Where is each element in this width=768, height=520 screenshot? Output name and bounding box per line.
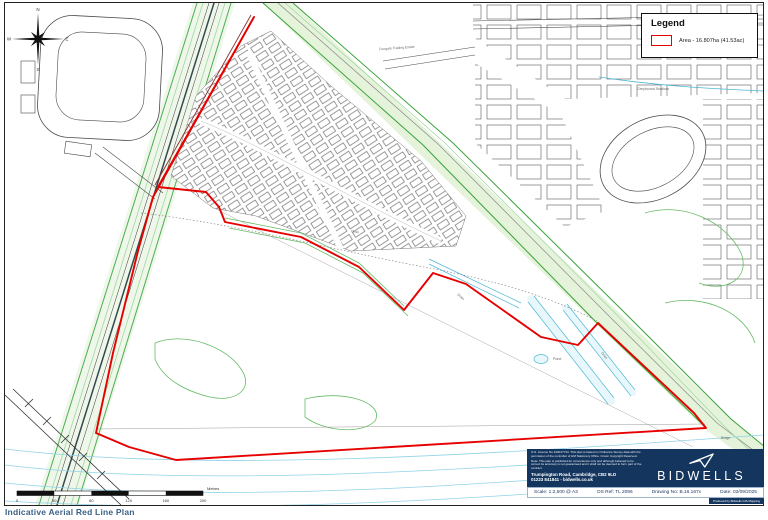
compass-n: N — [36, 7, 39, 12]
bidwells-wordmark: BIDWELLS — [657, 469, 746, 483]
label-stadium: Greyhound Stadium — [637, 87, 669, 91]
scale-tick-1: 40 — [52, 498, 57, 503]
page-title: Indicative Aerial Red Line Plan — [5, 507, 135, 517]
drawing-info-box: O.S. Licence No 100017734. This plan is … — [527, 449, 764, 504]
bidwells-logo: BIDWELLS — [643, 451, 760, 485]
legend-area-label: Area - 16.807ha (41.53ac) — [679, 38, 744, 44]
label-bridge: Bridge — [721, 436, 730, 440]
red-line-plan-page: N E S W Fengate Trading Estate Greyhound… — [0, 0, 768, 520]
office-contact: 01223 841841 - bidwells.co.uk — [531, 477, 643, 482]
license-text-1: O.S. Licence No 100017734. This plan is … — [531, 451, 643, 458]
compass-s: S — [36, 67, 39, 72]
label-pond: Pond — [553, 357, 561, 361]
date-text: Date: 02/09/2025 — [720, 490, 757, 495]
os-ref-text: OS Ref: TL 2096 — [597, 490, 633, 495]
scale-tick-2: 80 — [89, 498, 94, 503]
red-line-swatch — [651, 35, 672, 46]
drawing-no-text: Drawing No: B.16.167x — [652, 490, 701, 495]
scale-tick-3: 120 — [125, 498, 132, 503]
legend-title: Legend — [651, 18, 757, 29]
map-frame: N E S W Fengate Trading Estate Greyhound… — [4, 2, 764, 506]
license-text-2: Note: This plan is published for conveni… — [531, 460, 643, 471]
compass-e: E — [65, 37, 68, 42]
legend-box: Legend Area - 16.807ha (41.53ac) — [641, 13, 758, 58]
scale-text: Scale: 1:2,500 @ A3 — [534, 490, 578, 495]
bidwells-logo-icon — [689, 453, 715, 468]
scale-tick-4: 160 — [162, 498, 169, 503]
scale-tick-5: 200 — [200, 498, 207, 503]
scale-unit: Metres — [207, 486, 219, 491]
map-canvas: N E S W Fengate Trading Estate Greyhound… — [5, 3, 763, 505]
produced-by-tag: Produced by Bidwells GIS Mapping — [709, 498, 764, 504]
